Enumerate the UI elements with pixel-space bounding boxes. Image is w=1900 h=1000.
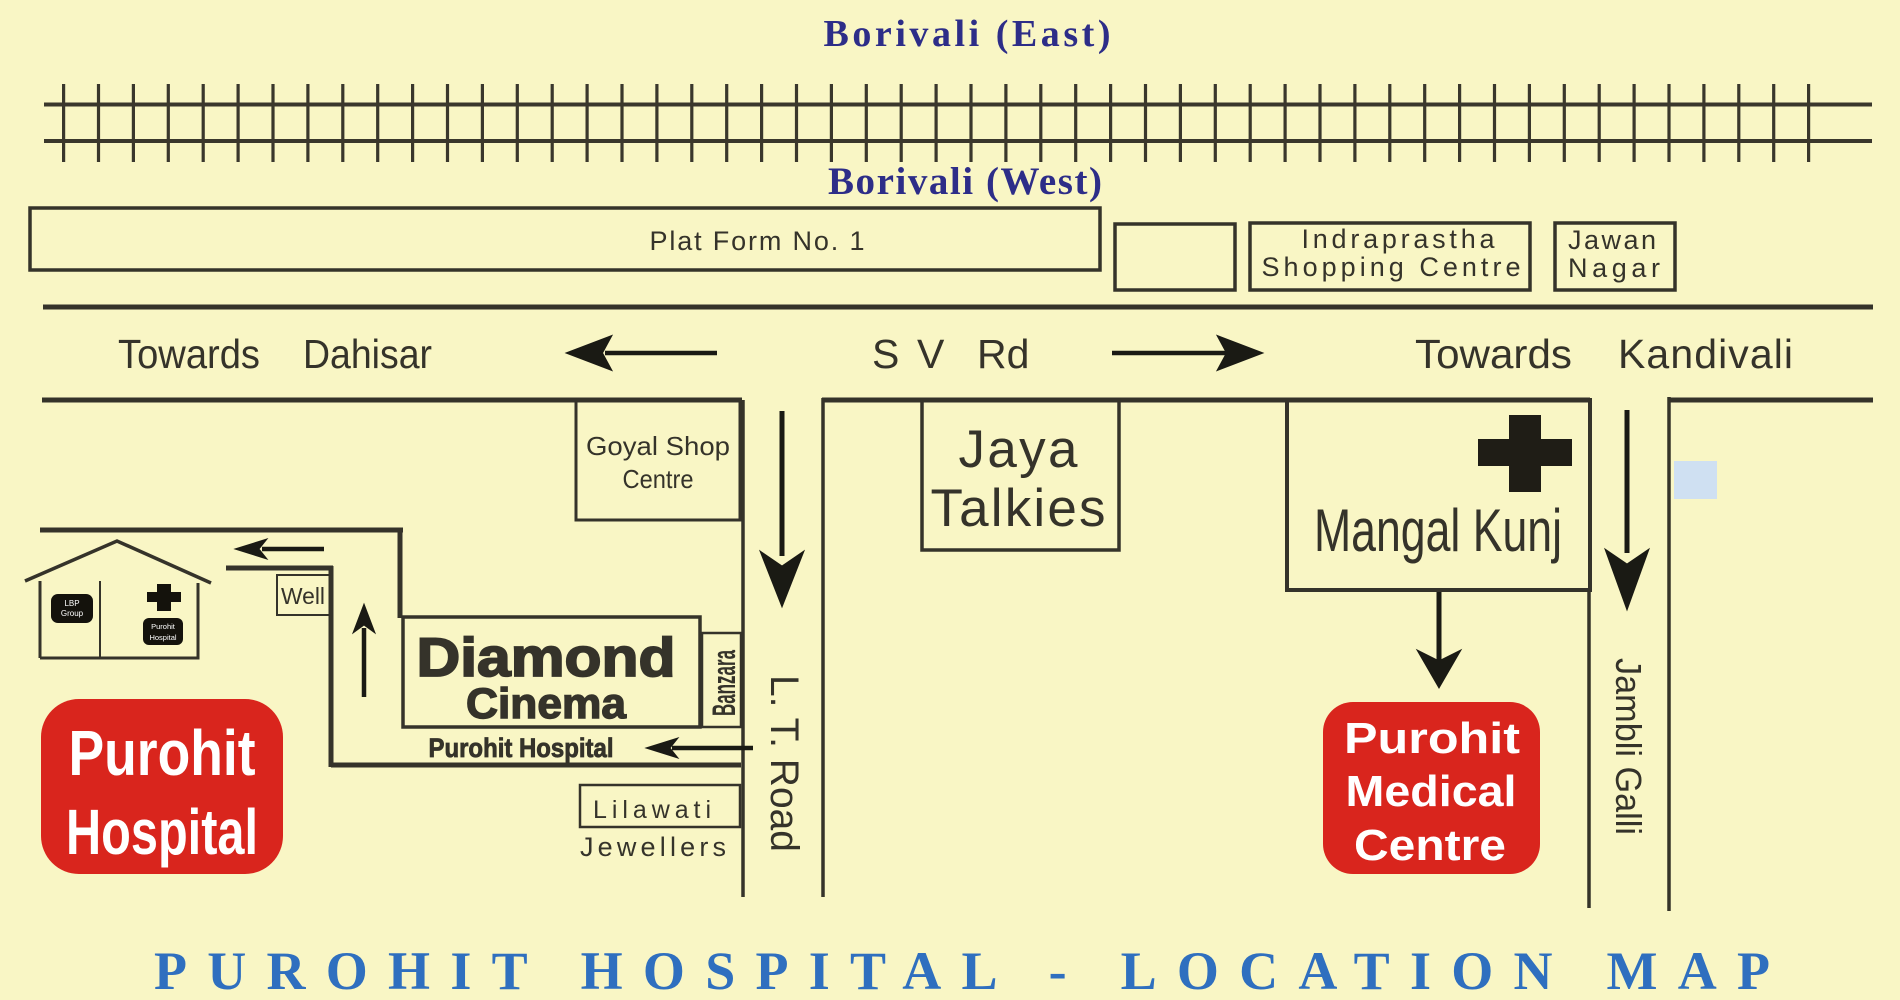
svg-text:Rd: Rd	[977, 331, 1029, 377]
svg-text:Jambli Galli: Jambli Galli	[1608, 658, 1649, 835]
svg-text:L. T. Road: L. T. Road	[762, 675, 806, 852]
svg-text:Diamond: Diamond	[417, 626, 676, 688]
svg-text:Kandivali: Kandivali	[1618, 331, 1793, 377]
svg-text:Jewellers: Jewellers	[580, 832, 726, 862]
svg-text:Towards: Towards	[1415, 331, 1572, 377]
svg-text:Cinema: Cinema	[466, 680, 627, 728]
svg-text:S: S	[872, 331, 899, 377]
svg-text:Purohit Hospital: Purohit Hospital	[429, 733, 614, 763]
svg-text:Jaya: Jaya	[959, 420, 1079, 479]
svg-text:PUROHIT HOSPITAL - LOCATION MA: PUROHIT HOSPITAL - LOCATION MAP	[154, 941, 1770, 1000]
svg-text:Hospital: Hospital	[66, 796, 258, 868]
svg-text:Well: Well	[281, 583, 325, 609]
svg-text:Talkies: Talkies	[931, 479, 1106, 538]
svg-text:Purohit: Purohit	[1344, 714, 1520, 763]
svg-text:Purohit: Purohit	[69, 717, 256, 789]
svg-text:Purohit: Purohit	[151, 622, 176, 631]
svg-text:Dahisar: Dahisar	[303, 331, 432, 377]
svg-text:Borivali (West): Borivali (West)	[828, 160, 1102, 203]
svg-text:Group: Group	[61, 609, 84, 618]
svg-text:Hospital: Hospital	[149, 633, 176, 642]
svg-text:V: V	[917, 331, 945, 377]
svg-text:Goyal Shop: Goyal Shop	[586, 431, 730, 461]
svg-text:Centre: Centre	[623, 464, 694, 494]
svg-text:LBP: LBP	[64, 599, 79, 608]
svg-text:Centre: Centre	[1354, 821, 1506, 870]
svg-text:Towards: Towards	[118, 331, 260, 377]
svg-text:Banzara: Banzara	[706, 650, 742, 716]
svg-text:Medical: Medical	[1346, 767, 1517, 816]
svg-text:Jawan: Jawan	[1568, 225, 1656, 255]
svg-text:Mangal Kunj: Mangal Kunj	[1314, 497, 1562, 564]
svg-text:Nagar: Nagar	[1568, 253, 1660, 283]
